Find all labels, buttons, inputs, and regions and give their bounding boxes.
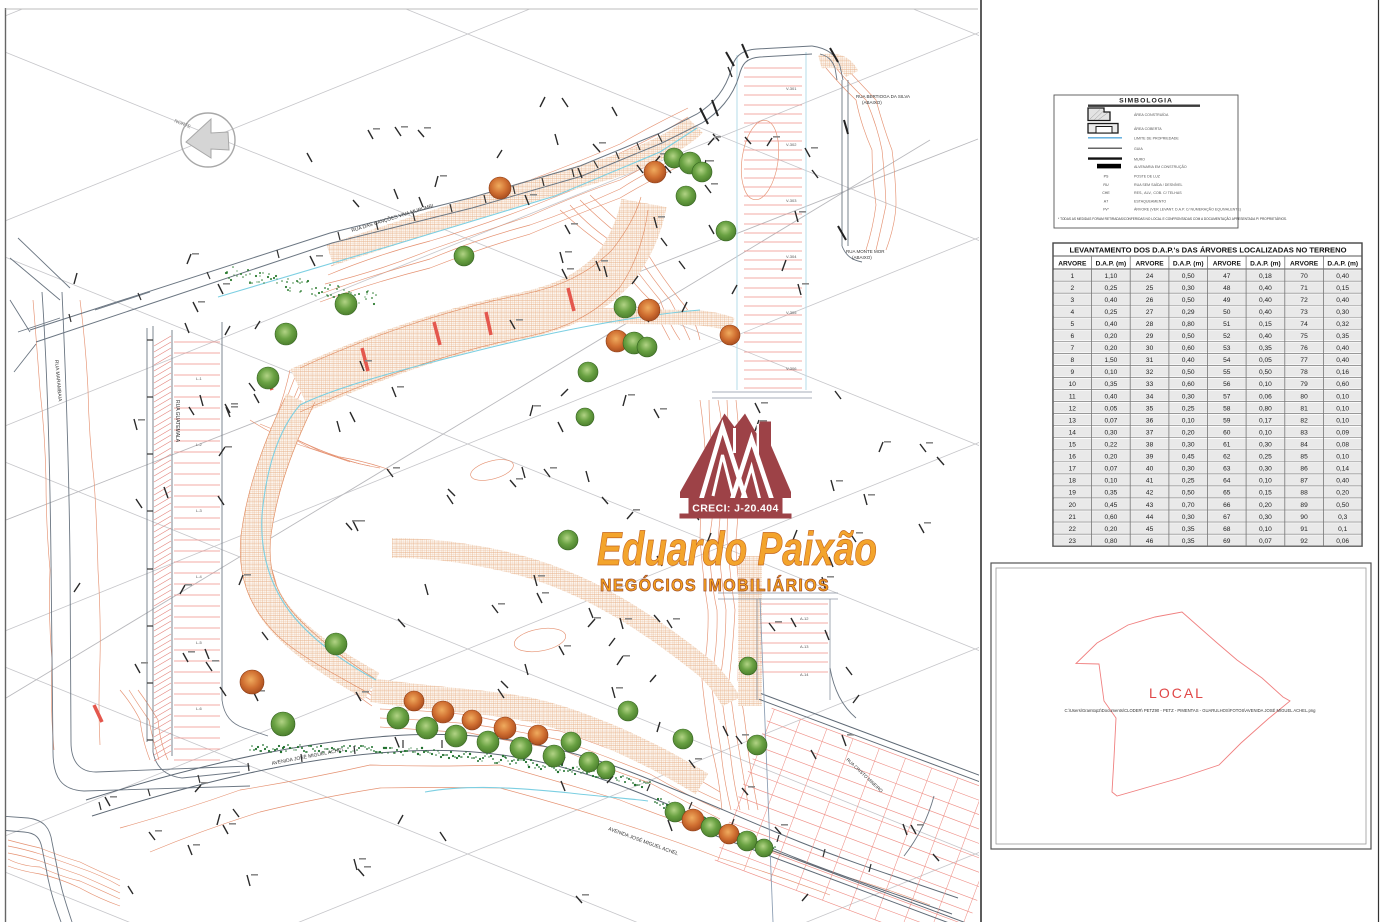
svg-text:V-303: V-303 — [786, 198, 797, 203]
svg-text:47: 47 — [1223, 273, 1231, 280]
svg-text:D.A.P. (m): D.A.P. (m) — [1173, 261, 1204, 268]
svg-text:1: 1 — [1070, 273, 1074, 280]
svg-text:22: 22 — [1069, 526, 1077, 533]
svg-text:ARVORE: ARVORE — [1136, 261, 1165, 268]
svg-text:A-14: A-14 — [800, 672, 809, 677]
svg-text:A7: A7 — [1104, 199, 1108, 203]
svg-text:0,40: 0,40 — [1336, 297, 1349, 304]
svg-text:0,60: 0,60 — [1182, 345, 1195, 352]
svg-text:76: 76 — [1300, 345, 1308, 352]
svg-text:40: 40 — [1146, 466, 1154, 473]
svg-text:75: 75 — [1300, 333, 1308, 340]
svg-text:8: 8 — [1070, 357, 1074, 364]
svg-text:88: 88 — [1300, 490, 1308, 497]
svg-text:42: 42 — [1146, 490, 1154, 497]
svg-text:0,30: 0,30 — [1259, 514, 1272, 521]
svg-text:34: 34 — [1146, 393, 1154, 400]
svg-text:L-1: L-1 — [196, 376, 203, 381]
svg-text:V-305: V-305 — [786, 310, 797, 315]
svg-text:L-2: L-2 — [196, 442, 203, 447]
svg-text:29: 29 — [1146, 333, 1154, 340]
svg-text:0,60: 0,60 — [1182, 381, 1195, 388]
svg-text:0,30: 0,30 — [1259, 442, 1272, 449]
svg-text:90: 90 — [1300, 514, 1308, 521]
svg-text:0,40: 0,40 — [1259, 309, 1272, 316]
svg-text:69: 69 — [1223, 538, 1231, 545]
svg-text:30: 30 — [1146, 345, 1154, 352]
svg-text:0,50: 0,50 — [1182, 490, 1195, 497]
svg-text:Pv*: Pv* — [1103, 208, 1109, 212]
svg-text:0,35: 0,35 — [1336, 333, 1349, 340]
svg-text:L-4: L-4 — [196, 574, 203, 579]
svg-text:91: 91 — [1300, 526, 1308, 533]
svg-text:18: 18 — [1069, 478, 1077, 485]
svg-text:0,40: 0,40 — [1259, 333, 1272, 340]
svg-text:L-3: L-3 — [196, 508, 203, 513]
svg-text:3: 3 — [1070, 297, 1074, 304]
svg-text:71: 71 — [1300, 285, 1308, 292]
svg-text:0,10: 0,10 — [1259, 429, 1272, 436]
svg-text:0,60: 0,60 — [1336, 381, 1349, 388]
svg-text:0,14: 0,14 — [1336, 466, 1349, 473]
svg-text:PS: PS — [1104, 175, 1109, 179]
svg-text:57: 57 — [1223, 393, 1231, 400]
svg-text:58: 58 — [1223, 405, 1231, 412]
svg-text:0,80: 0,80 — [1182, 321, 1195, 328]
svg-text:RUA GUATEMALA: RUA GUATEMALA — [174, 400, 180, 443]
svg-text:0,30: 0,30 — [1336, 309, 1349, 316]
svg-text:0,40: 0,40 — [1336, 357, 1349, 364]
svg-text:A-12: A-12 — [800, 616, 809, 621]
svg-text:0,40: 0,40 — [1336, 478, 1349, 485]
svg-text:33: 33 — [1146, 381, 1154, 388]
svg-text:72: 72 — [1300, 297, 1308, 304]
svg-text:0,50: 0,50 — [1182, 369, 1195, 376]
svg-text:0,20: 0,20 — [1104, 333, 1117, 340]
svg-text:0,1: 0,1 — [1338, 526, 1347, 533]
svg-text:20: 20 — [1069, 502, 1077, 509]
svg-text:24: 24 — [1146, 273, 1154, 280]
svg-text:39: 39 — [1146, 454, 1154, 461]
svg-text:* TODAS AS MEDIDAS FORAM RETIR: * TODAS AS MEDIDAS FORAM RETIRADAS/CONFE… — [1058, 216, 1287, 221]
svg-text:59: 59 — [1223, 417, 1231, 424]
svg-text:63: 63 — [1223, 466, 1231, 473]
svg-text:0,40: 0,40 — [1104, 321, 1117, 328]
svg-text:26: 26 — [1146, 297, 1154, 304]
svg-text:0,35: 0,35 — [1182, 538, 1195, 545]
svg-text:CRECI: J-20.404: CRECI: J-20.404 — [692, 503, 779, 515]
svg-text:RES., ALV., COB. C/ TELHAS: RES., ALV., COB. C/ TELHAS — [1134, 191, 1182, 195]
svg-text:L-5: L-5 — [196, 640, 203, 645]
svg-text:0,30: 0,30 — [1182, 466, 1195, 473]
svg-text:0,20: 0,20 — [1336, 490, 1349, 497]
svg-text:16: 16 — [1069, 454, 1077, 461]
svg-text:C:\Users\Gramtop2\Documents\CL: C:\Users\Gramtop2\Documents\CLODER\ PETZ… — [1065, 708, 1317, 713]
svg-text:0,30: 0,30 — [1182, 514, 1195, 521]
svg-text:60: 60 — [1223, 429, 1231, 436]
svg-text:67: 67 — [1223, 514, 1231, 521]
svg-text:ARVORE: ARVORE — [1213, 261, 1242, 268]
svg-text:0,10: 0,10 — [1182, 417, 1195, 424]
svg-text:46: 46 — [1146, 538, 1154, 545]
svg-text:ALVENARIA EM CONSTRUÇÃO: ALVENARIA EM CONSTRUÇÃO — [1134, 164, 1187, 169]
svg-text:0,30: 0,30 — [1182, 393, 1195, 400]
svg-text:9: 9 — [1070, 369, 1074, 376]
svg-text:0,50: 0,50 — [1182, 273, 1195, 280]
svg-text:0,20: 0,20 — [1182, 429, 1195, 436]
svg-text:0,10: 0,10 — [1336, 393, 1349, 400]
svg-text:0,15: 0,15 — [1259, 321, 1272, 328]
svg-text:0,32: 0,32 — [1336, 321, 1349, 328]
svg-text:36: 36 — [1146, 417, 1154, 424]
svg-text:LIMITE DE PROPRIEDADE: LIMITE DE PROPRIEDADE — [1134, 137, 1179, 141]
svg-text:0,45: 0,45 — [1104, 502, 1117, 509]
svg-text:48: 48 — [1223, 285, 1231, 292]
svg-text:0,35: 0,35 — [1104, 490, 1117, 497]
svg-text:5: 5 — [1070, 321, 1074, 328]
svg-text:0,35: 0,35 — [1104, 381, 1117, 388]
svg-text:ÁREA COBERTA: ÁREA COBERTA — [1134, 127, 1162, 131]
svg-text:87: 87 — [1300, 478, 1308, 485]
svg-text:45: 45 — [1146, 526, 1154, 533]
svg-text:0,10: 0,10 — [1104, 369, 1117, 376]
svg-text:85: 85 — [1300, 454, 1308, 461]
svg-text:6: 6 — [1070, 333, 1074, 340]
svg-text:19: 19 — [1069, 490, 1077, 497]
svg-text:V-302: V-302 — [786, 142, 797, 147]
svg-text:NEGÓCIOS IMOBILIÁRIOS: NEGÓCIOS IMOBILIÁRIOS — [600, 574, 830, 595]
svg-text:68: 68 — [1223, 526, 1231, 533]
svg-text:0,40: 0,40 — [1182, 357, 1195, 364]
svg-text:38: 38 — [1146, 442, 1154, 449]
svg-text:0,40: 0,40 — [1259, 297, 1272, 304]
svg-text:53: 53 — [1223, 345, 1231, 352]
svg-text:A-13: A-13 — [800, 644, 809, 649]
svg-text:0,70: 0,70 — [1182, 502, 1195, 509]
svg-text:0,50: 0,50 — [1182, 297, 1195, 304]
svg-text:0,50: 0,50 — [1259, 369, 1272, 376]
svg-text:0,29: 0,29 — [1182, 309, 1195, 316]
svg-text:56: 56 — [1223, 381, 1231, 388]
svg-text:51: 51 — [1223, 321, 1231, 328]
svg-text:78: 78 — [1300, 369, 1308, 376]
svg-text:44: 44 — [1146, 514, 1154, 521]
svg-text:0,30: 0,30 — [1182, 285, 1195, 292]
svg-text:0,10: 0,10 — [1259, 526, 1272, 533]
svg-text:28: 28 — [1146, 321, 1154, 328]
svg-text:49: 49 — [1223, 297, 1231, 304]
svg-text:89: 89 — [1300, 502, 1308, 509]
svg-text:0,25: 0,25 — [1259, 454, 1272, 461]
svg-text:0,50: 0,50 — [1182, 333, 1195, 340]
svg-text:0,20: 0,20 — [1104, 345, 1117, 352]
svg-text:54: 54 — [1223, 357, 1231, 364]
svg-text:27: 27 — [1146, 309, 1154, 316]
svg-text:V-306: V-306 — [786, 366, 797, 371]
svg-text:65: 65 — [1223, 490, 1231, 497]
svg-text:ARVORE: ARVORE — [1290, 261, 1319, 268]
svg-text:ÁREA CONSTRUÍDA: ÁREA CONSTRUÍDA — [1134, 113, 1169, 117]
svg-text:73: 73 — [1300, 309, 1308, 316]
svg-text:37: 37 — [1146, 429, 1154, 436]
svg-text:D.A.P. (m): D.A.P. (m) — [1250, 261, 1281, 268]
svg-text:1,10: 1,10 — [1104, 273, 1117, 280]
svg-text:0,25: 0,25 — [1182, 405, 1195, 412]
svg-text:61: 61 — [1223, 442, 1231, 449]
svg-text:0,30: 0,30 — [1104, 429, 1117, 436]
svg-text:86: 86 — [1300, 466, 1308, 473]
svg-text:0,30: 0,30 — [1259, 466, 1272, 473]
svg-text:0,06: 0,06 — [1259, 393, 1272, 400]
svg-text:77: 77 — [1300, 357, 1308, 364]
svg-text:LEVANTAMENTO DOS D.A.P.'s DAS: LEVANTAMENTO DOS D.A.P.'s DAS ÁRVORES LO… — [1069, 246, 1346, 255]
svg-text:1,50: 1,50 — [1104, 357, 1117, 364]
svg-text:0,08: 0,08 — [1336, 442, 1349, 449]
svg-text:D.A.P. (m): D.A.P. (m) — [1096, 261, 1127, 268]
svg-text:52: 52 — [1223, 333, 1231, 340]
svg-text:41: 41 — [1146, 478, 1154, 485]
svg-text:(ABAIXO): (ABAIXO) — [852, 255, 872, 260]
svg-text:17: 17 — [1069, 466, 1077, 473]
svg-text:ARVORE: ARVORE — [1058, 261, 1087, 268]
svg-text:0,40: 0,40 — [1259, 285, 1272, 292]
svg-text:62: 62 — [1223, 454, 1231, 461]
svg-text:0,50: 0,50 — [1336, 502, 1349, 509]
svg-text:50: 50 — [1223, 309, 1231, 316]
svg-text:0,05: 0,05 — [1104, 405, 1117, 412]
svg-text:0,10: 0,10 — [1336, 454, 1349, 461]
svg-text:0,10: 0,10 — [1259, 381, 1272, 388]
svg-text:32: 32 — [1146, 369, 1154, 376]
svg-text:0,07: 0,07 — [1259, 538, 1272, 545]
svg-text:0,30: 0,30 — [1182, 442, 1195, 449]
svg-text:0,20: 0,20 — [1104, 454, 1117, 461]
svg-text:(ABAIXO): (ABAIXO) — [862, 100, 882, 105]
svg-text:0,40: 0,40 — [1336, 345, 1349, 352]
svg-text:0,10: 0,10 — [1259, 478, 1272, 485]
svg-text:SIMBOLOGIA: SIMBOLOGIA — [1119, 98, 1173, 105]
svg-text:15: 15 — [1069, 442, 1077, 449]
svg-text:0,15: 0,15 — [1259, 490, 1272, 497]
svg-text:25: 25 — [1146, 285, 1154, 292]
svg-text:V-304: V-304 — [786, 254, 797, 259]
svg-text:0,20: 0,20 — [1259, 502, 1272, 509]
svg-text:0,3: 0,3 — [1338, 514, 1347, 521]
svg-text:0,09: 0,09 — [1336, 429, 1349, 436]
svg-text:13: 13 — [1069, 417, 1077, 424]
svg-text:82: 82 — [1300, 417, 1308, 424]
svg-text:66: 66 — [1223, 502, 1231, 509]
svg-text:79: 79 — [1300, 381, 1308, 388]
svg-text:0,35: 0,35 — [1259, 345, 1272, 352]
svg-text:0,25: 0,25 — [1104, 309, 1117, 316]
svg-text:10: 10 — [1069, 381, 1077, 388]
svg-text:0,40: 0,40 — [1336, 273, 1349, 280]
svg-text:0,06: 0,06 — [1336, 538, 1349, 545]
svg-text:GUIA: GUIA — [1134, 147, 1143, 151]
svg-text:31: 31 — [1146, 357, 1154, 364]
svg-text:70: 70 — [1300, 273, 1308, 280]
svg-text:RUA MONTE MOR: RUA MONTE MOR — [846, 249, 885, 254]
svg-text:2: 2 — [1070, 285, 1074, 292]
svg-text:0,10: 0,10 — [1336, 417, 1349, 424]
svg-text:0,07: 0,07 — [1104, 417, 1117, 424]
svg-text:0,07: 0,07 — [1104, 466, 1117, 473]
svg-text:0,16: 0,16 — [1336, 369, 1349, 376]
svg-text:74: 74 — [1300, 321, 1308, 328]
svg-text:0,25: 0,25 — [1104, 285, 1117, 292]
svg-text:V-301: V-301 — [786, 86, 797, 91]
svg-text:92: 92 — [1300, 538, 1308, 545]
svg-text:81: 81 — [1300, 405, 1308, 412]
svg-text:L-6: L-6 — [196, 706, 203, 711]
svg-text:RUA BERTIOGA DA SILVA: RUA BERTIOGA DA SILVA — [856, 94, 910, 99]
svg-text:0,20: 0,20 — [1104, 526, 1117, 533]
svg-text:0,35: 0,35 — [1182, 526, 1195, 533]
svg-text:0,45: 0,45 — [1182, 454, 1195, 461]
svg-text:21: 21 — [1069, 514, 1077, 521]
svg-text:ÁRVORE (VER LEVANT. D.A.P. C/: ÁRVORE (VER LEVANT. D.A.P. C/ NUMERAÇÃO … — [1134, 207, 1241, 212]
svg-text:MURO: MURO — [1134, 157, 1145, 161]
svg-text:11: 11 — [1069, 393, 1076, 400]
svg-text:83: 83 — [1300, 429, 1308, 436]
svg-text:RUA SEM SAÍDA / DESNÍVEL: RUA SEM SAÍDA / DESNÍVEL — [1134, 183, 1183, 187]
svg-text:0,10: 0,10 — [1336, 405, 1349, 412]
svg-text:0,15: 0,15 — [1336, 285, 1349, 292]
svg-text:7: 7 — [1070, 345, 1074, 352]
svg-text:55: 55 — [1223, 369, 1231, 376]
svg-text:43: 43 — [1146, 502, 1154, 509]
svg-text:0,80: 0,80 — [1259, 405, 1272, 412]
svg-text:80: 80 — [1300, 393, 1308, 400]
svg-text:RU: RU — [1103, 183, 1109, 187]
svg-text:0,60: 0,60 — [1104, 514, 1117, 521]
svg-text:0,22: 0,22 — [1104, 442, 1117, 449]
svg-text:0,05: 0,05 — [1259, 357, 1272, 364]
svg-text:14: 14 — [1069, 429, 1077, 436]
svg-text:23: 23 — [1069, 538, 1077, 545]
svg-text:D.A.P. (m): D.A.P. (m) — [1327, 261, 1358, 268]
svg-text:POSTE DE LUZ: POSTE DE LUZ — [1134, 175, 1161, 179]
svg-text:12: 12 — [1069, 405, 1077, 412]
svg-text:35: 35 — [1146, 405, 1154, 412]
svg-text:0,40: 0,40 — [1104, 297, 1117, 304]
svg-text:ESTAQUEAMENTO: ESTAQUEAMENTO — [1134, 199, 1166, 203]
svg-text:4: 4 — [1070, 309, 1074, 316]
svg-text:84: 84 — [1300, 442, 1308, 449]
svg-text:0,10: 0,10 — [1104, 478, 1117, 485]
svg-text:0,17: 0,17 — [1259, 417, 1272, 424]
svg-text:0,25: 0,25 — [1182, 478, 1195, 485]
svg-text:0,18: 0,18 — [1259, 273, 1272, 280]
svg-text:CHE: CHE — [1102, 191, 1110, 195]
svg-text:0,80: 0,80 — [1104, 538, 1117, 545]
svg-text:LOCAL: LOCAL — [1149, 685, 1205, 701]
svg-text:0,40: 0,40 — [1104, 393, 1117, 400]
svg-text:64: 64 — [1223, 478, 1231, 485]
svg-text:Eduardo Paixão: Eduardo Paixão — [597, 522, 877, 575]
